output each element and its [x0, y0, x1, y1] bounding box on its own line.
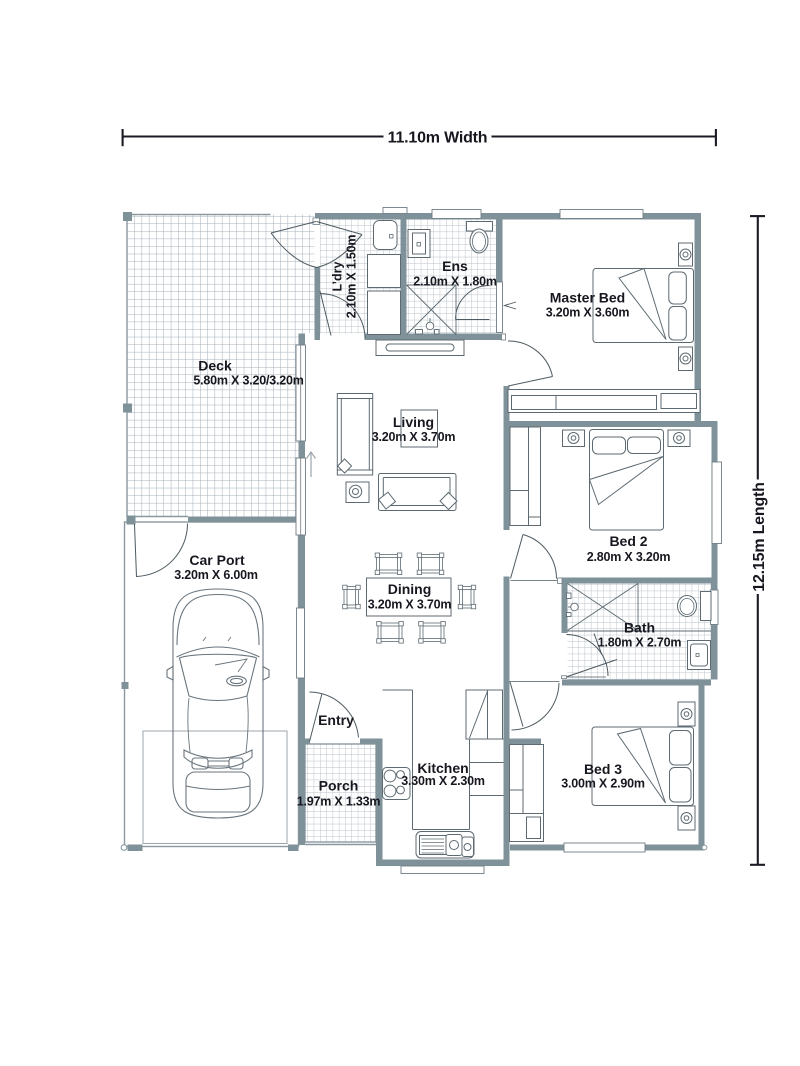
- svg-text:3.00m X 2.90m: 3.00m X 2.90m: [561, 777, 645, 791]
- svg-text:Master Bed: Master Bed: [550, 290, 625, 306]
- svg-text:3.30m X 2.30m: 3.30m X 2.30m: [401, 774, 485, 788]
- svg-text:L’dry: L’dry: [331, 262, 345, 292]
- svg-text:5.80m X 3.20/3.20m: 5.80m X 3.20/3.20m: [193, 374, 303, 388]
- svg-text:Car Port: Car Port: [189, 552, 245, 568]
- svg-text:Bed 3: Bed 3: [584, 761, 622, 777]
- svg-text:Dining: Dining: [388, 581, 432, 597]
- svg-text:Ens: Ens: [442, 258, 468, 274]
- svg-text:Bath: Bath: [624, 620, 655, 636]
- svg-text:2.10m X 1.50m: 2.10m X 1.50m: [345, 235, 359, 319]
- svg-text:Porch: Porch: [319, 778, 359, 794]
- svg-text:Bed 2: Bed 2: [609, 533, 647, 549]
- svg-text:12.15m Length: 12.15m Length: [751, 482, 768, 591]
- svg-text:1.80m X 2.70m: 1.80m X 2.70m: [598, 636, 682, 650]
- svg-text:3.20m X 3.60m: 3.20m X 3.60m: [546, 306, 630, 320]
- svg-text:Entry: Entry: [318, 712, 354, 728]
- svg-text:2.10m X 1.80m: 2.10m X 1.80m: [413, 275, 497, 289]
- svg-text:2.80m X 3.20m: 2.80m X 3.20m: [587, 550, 671, 564]
- svg-text:Deck: Deck: [198, 358, 232, 374]
- svg-text:3.20m X 6.00m: 3.20m X 6.00m: [174, 568, 258, 582]
- svg-text:3.20m X 3.70m: 3.20m X 3.70m: [372, 430, 456, 444]
- svg-text:1.97m X 1.33m: 1.97m X 1.33m: [297, 795, 381, 809]
- svg-text:11.10m Width: 11.10m Width: [388, 130, 488, 147]
- svg-text:3.20m X 3.70m: 3.20m X 3.70m: [368, 598, 452, 612]
- svg-text:Living: Living: [393, 414, 434, 430]
